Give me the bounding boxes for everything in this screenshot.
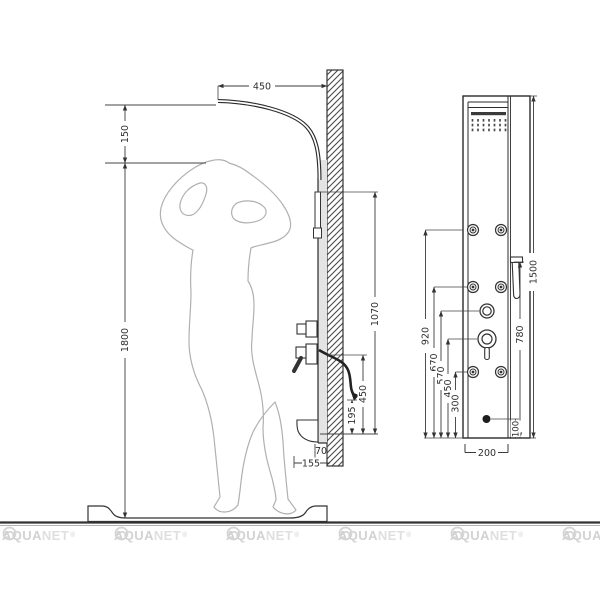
body-jet	[468, 367, 479, 378]
watermark-logo-icon	[338, 526, 353, 541]
watermark-logo-icon	[226, 526, 241, 541]
mixer-knob-side	[294, 344, 317, 371]
watermark-reg-mark: ®	[294, 532, 300, 539]
watermark: AQUANET®	[226, 526, 300, 544]
dim-panel-width: 200	[465, 444, 508, 459]
dim-label: 150	[120, 125, 131, 143]
dim-label: 1070	[370, 302, 381, 326]
watermark-logo-icon	[562, 526, 577, 541]
dim-label: 780	[515, 325, 526, 343]
diagram-drawing: 450 150 1800 1070 450 195 70	[0, 0, 600, 600]
dim-figure-height: 1800	[120, 163, 132, 518]
body-jet	[496, 282, 507, 293]
dim-label: 70	[315, 446, 327, 457]
watermark-logo-icon	[450, 526, 465, 541]
hand-shower-side	[314, 192, 322, 238]
watermark: AQUANET®	[114, 526, 188, 544]
watermark: AQUANET®	[450, 526, 524, 544]
dim-shelf-depth: 155	[294, 456, 330, 470]
dim-arm-projection: 450	[218, 81, 327, 101]
watermark-logo-icon	[2, 526, 17, 541]
figure-silhouette	[160, 160, 296, 514]
watermark-reg-mark: ®	[406, 532, 412, 539]
dim-label: 1500	[529, 260, 540, 284]
watermark-reg-mark: ®	[518, 532, 524, 539]
watermark-reg-mark: ®	[70, 532, 76, 539]
wall-section	[327, 70, 343, 466]
shower-panel-installation-diagram: 450 150 1800 1070 450 195 70	[0, 0, 600, 600]
dim-label: 300	[451, 394, 462, 412]
soap-shelf	[297, 420, 318, 442]
dim-label: 450	[358, 385, 369, 403]
dim-head-offset: 150	[120, 105, 132, 163]
dim-label: 195	[347, 406, 358, 424]
watermark-text-light: NET	[154, 528, 181, 543]
diverter-knob-side	[297, 321, 317, 337]
watermark: AQUANET®	[338, 526, 412, 544]
dim-label: 155	[302, 459, 320, 470]
water-outlet	[483, 415, 491, 423]
body-jet	[468, 225, 479, 236]
dim-label: 450	[253, 82, 271, 93]
body-jet	[496, 225, 507, 236]
watermark: AQUANET®	[562, 526, 600, 544]
watermark-text-light: NET	[266, 528, 293, 543]
dim-label: 1800	[120, 328, 131, 352]
watermark-text-light: NET	[378, 528, 405, 543]
dim-label: 200	[478, 448, 496, 459]
watermark-reg-mark: ®	[182, 532, 188, 539]
dim-label: 920	[421, 327, 432, 345]
body-jet	[468, 282, 479, 293]
watermark: AQUANET®	[2, 526, 76, 544]
diverter-knob-front	[480, 304, 494, 318]
watermark-logo-icon	[114, 526, 129, 541]
dim-hose-end-height: 195	[347, 400, 359, 434]
watermark-text-light: NET	[490, 528, 517, 543]
dim-label: 100	[512, 421, 522, 437]
dim-panel-depth: 70	[315, 444, 327, 458]
body-jet	[496, 367, 507, 378]
watermark-text-light: NET	[42, 528, 69, 543]
